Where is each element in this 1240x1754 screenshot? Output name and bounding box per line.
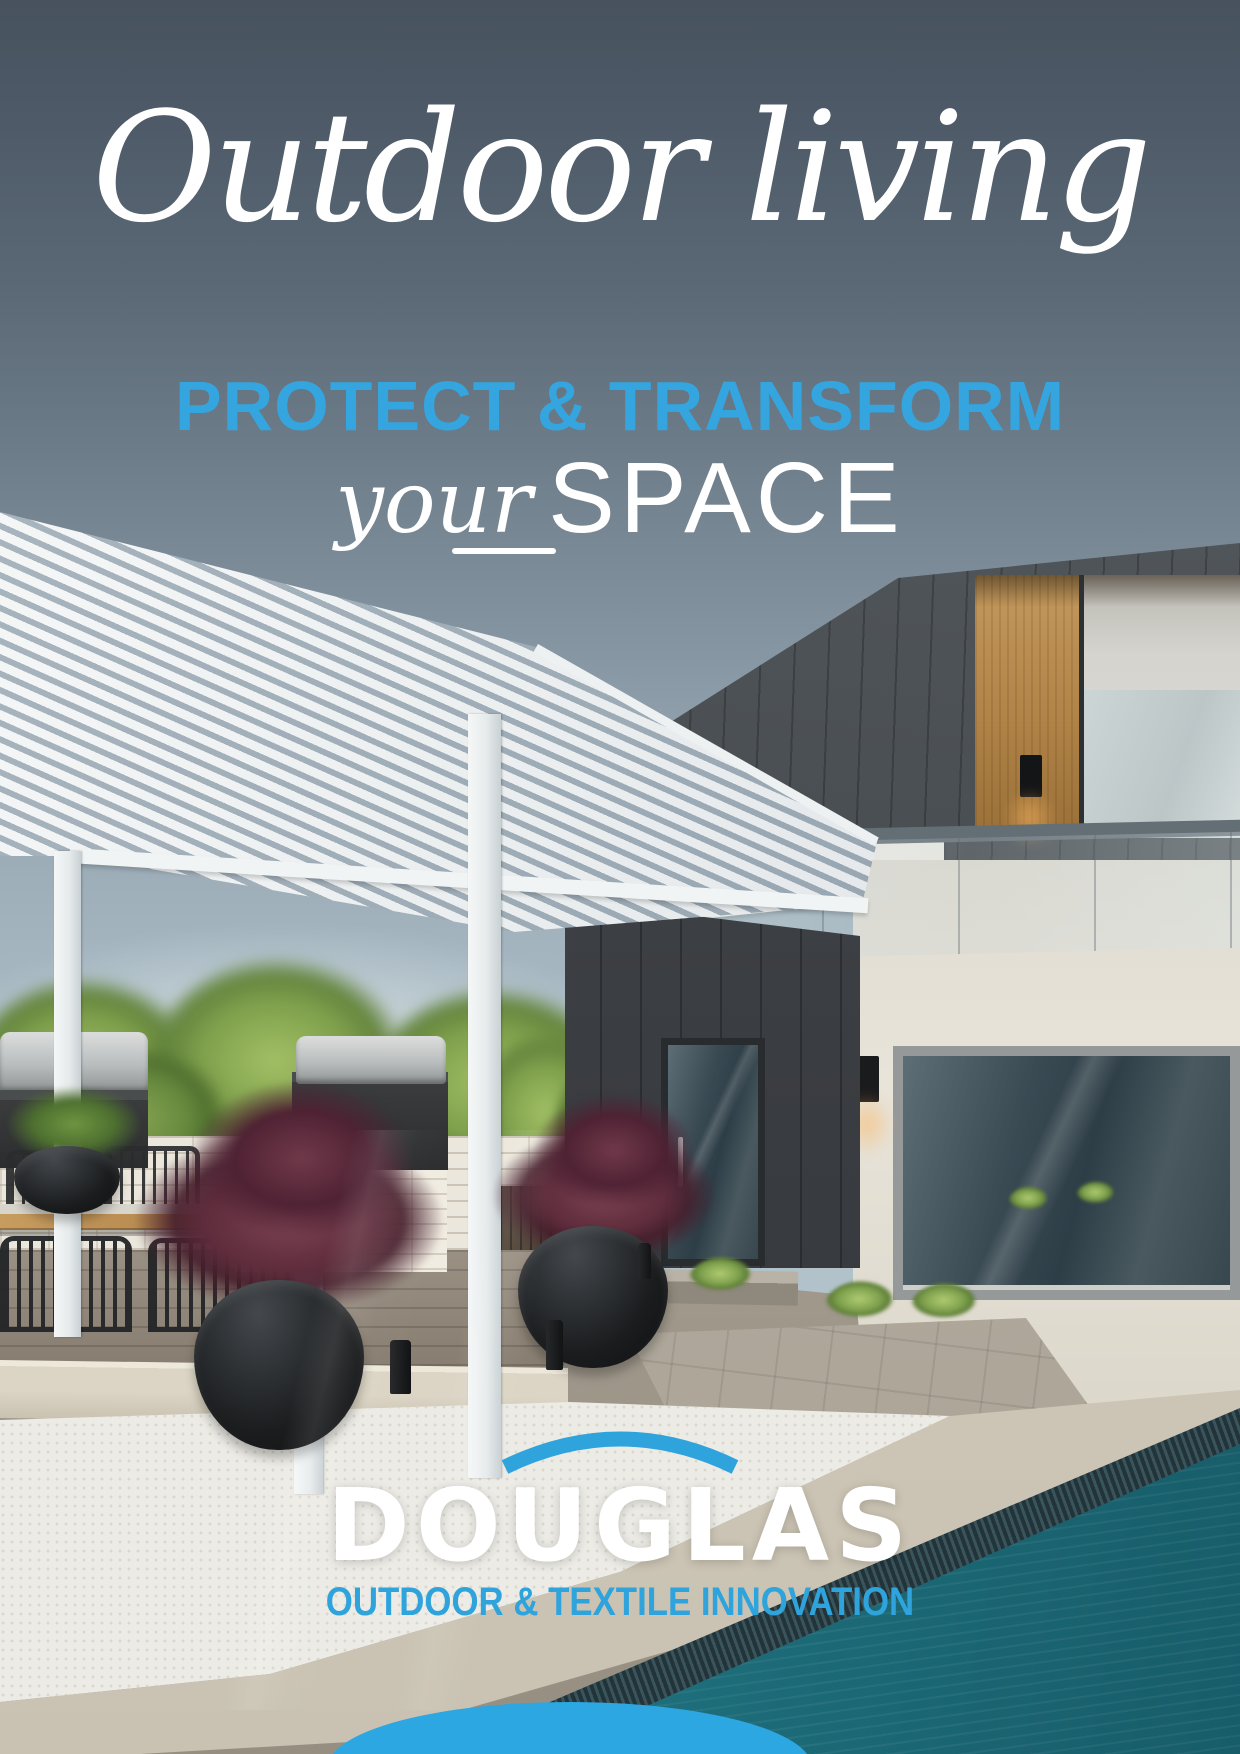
- logo-wordmark: DOUGLAS: [0, 1476, 1240, 1576]
- garden-bush: [1008, 1186, 1058, 1220]
- garden-bush: [1076, 1181, 1124, 1213]
- cover-subtitle: PROTECT & TRANSFORM: [0, 366, 1240, 446]
- logo-tagline: OUTDOOR & TEXTILE INNOVATION: [81, 1580, 1160, 1625]
- your-underline: [452, 548, 556, 554]
- brochure-cover: Outdoor living PROTECT & TRANSFORM your …: [0, 0, 1240, 1754]
- living-room-window: [893, 1046, 1240, 1300]
- balcony-recess: [975, 575, 1240, 838]
- bbq-grill-hood: [296, 1036, 446, 1084]
- logo-arc: [495, 1419, 745, 1474]
- cover-title: Outdoor living: [0, 88, 1240, 248]
- caps-word: SPACE: [548, 448, 905, 548]
- cover-subtitle-line2: your SPACE: [0, 448, 1240, 548]
- balcony-frame: [1079, 575, 1084, 838]
- script-word: your: [335, 460, 532, 546]
- balcony-window: [1079, 690, 1240, 838]
- garden-bush: [910, 1282, 994, 1334]
- garden-bush: [824, 1280, 912, 1334]
- swoosh-arc-icon: [495, 1419, 745, 1474]
- balcony-ceiling-shadow: [975, 575, 1240, 607]
- garden-bush: [688, 1256, 768, 1306]
